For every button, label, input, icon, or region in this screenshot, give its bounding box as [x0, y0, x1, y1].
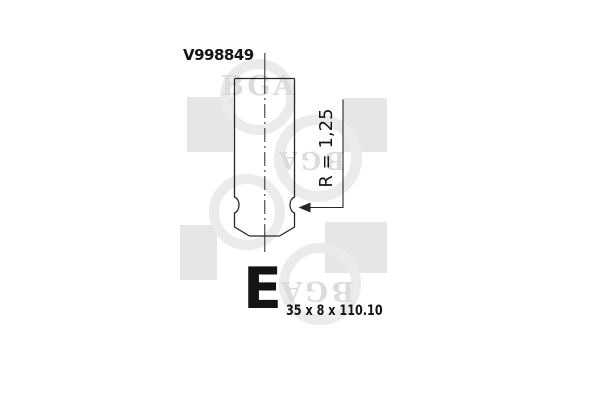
valve-technical-drawing: BGA BGA BGA V998849 R = 1,25 E 35 x 8 x …	[0, 0, 600, 400]
dimensions-text: 35 x 8 x 110.10	[286, 303, 383, 319]
size-class-letter: E	[243, 261, 282, 318]
valve-outline-drawing	[0, 0, 600, 400]
radius-dimension-label: R = 1,25	[315, 100, 339, 196]
part-number: V998849	[183, 46, 254, 64]
radius-arrow-icon	[299, 203, 311, 213]
